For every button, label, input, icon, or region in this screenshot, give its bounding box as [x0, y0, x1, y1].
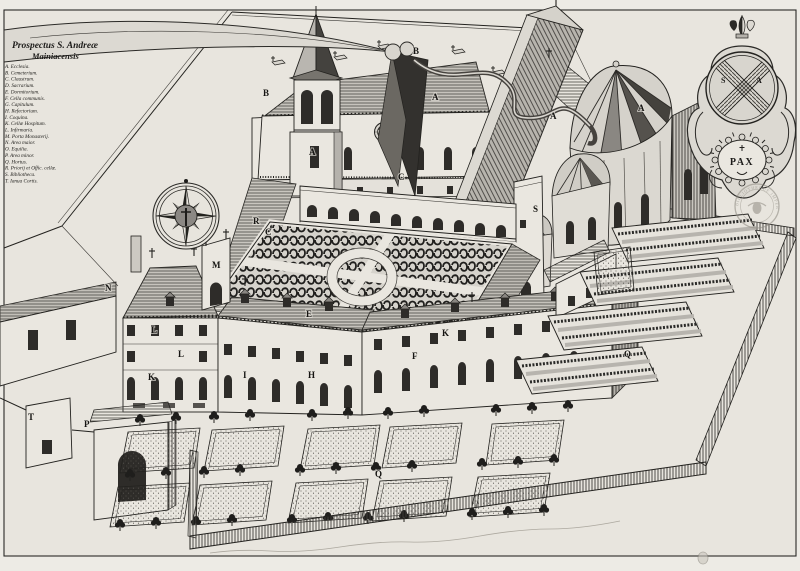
- map-letter: E: [306, 309, 312, 319]
- map-letter: A: [550, 111, 557, 121]
- legend-item: L. Infirmaria.: [4, 127, 33, 134]
- drape-knot: [385, 44, 401, 60]
- map-letter: M: [212, 260, 221, 270]
- legend-item: N. Area maior.: [4, 140, 36, 146]
- court-gate-tower: [26, 398, 72, 468]
- shield-medallion: S A: [706, 52, 778, 124]
- map-letter: R: [253, 216, 260, 226]
- map-letter: I: [243, 370, 247, 380]
- legend-item: E. Dormitorium.: [4, 89, 39, 95]
- map-title-line2: Mainiacensis: [31, 51, 79, 61]
- shield-letter-left: S: [721, 76, 726, 85]
- map-letter: L: [151, 325, 157, 335]
- map-letter: N: [105, 283, 112, 293]
- map-letter: K: [442, 328, 449, 338]
- map-letter: K: [148, 372, 155, 382]
- map-letter: A: [638, 103, 645, 113]
- stamp-eagle: [753, 202, 762, 214]
- plate-blemish: [698, 552, 708, 564]
- map-letter: P: [84, 419, 90, 429]
- map-letter: S: [533, 204, 538, 214]
- legend-item: G. Capitulum.: [5, 102, 35, 108]
- legend-item: H. Refectorium.: [4, 108, 38, 115]
- legend-item: P. Area minor.: [4, 153, 35, 159]
- map-letter: C: [398, 172, 405, 182]
- map-letter: Q: [624, 349, 631, 359]
- legend-item: O. Equilia.: [5, 147, 28, 153]
- compass-north-mark: [184, 179, 188, 183]
- map-letter: F: [412, 351, 418, 361]
- shield-letter-right: A: [756, 76, 762, 85]
- legend-item: Q. Hortus.: [5, 159, 27, 165]
- chimney: [131, 236, 141, 272]
- map-letter: H: [308, 370, 315, 380]
- legend-item: S. Bibliotheca.: [5, 172, 35, 178]
- map-letter: Q: [375, 469, 382, 479]
- legend-item: D. Sacrarium.: [4, 83, 35, 89]
- map-letter: C: [265, 227, 272, 237]
- orchard-west-wall: [188, 450, 198, 538]
- map-letter: L: [178, 349, 184, 359]
- legend-item: R. Priorij et Offic. cellæ.: [4, 165, 56, 172]
- engraving-plate: Prospectus S. Andreæ Mainiacensis A. Ecc…: [0, 0, 800, 571]
- map-letter: A: [432, 92, 439, 102]
- pax-motto: PAX: [730, 157, 754, 168]
- legend-item: T. Ianua Cortis.: [5, 178, 38, 184]
- legend-item: M. Porta Monasterij.: [4, 134, 49, 140]
- legend-item: F. Cella communis.: [4, 96, 45, 102]
- map-letter: A: [309, 147, 316, 157]
- map-letter: T: [28, 412, 34, 422]
- map-letter: B: [413, 46, 419, 56]
- map-letter: B: [263, 88, 269, 98]
- terrace-plot: [594, 247, 634, 295]
- legend-item: I. Coquina.: [4, 115, 29, 121]
- monastery-birdseye-engraving: Prospectus S. Andreæ Mainiacensis A. Ecc…: [0, 0, 800, 571]
- map-title-line1: Prospectus S. Andreæ: [12, 41, 98, 51]
- legend-item: K. Cellæ Hospitum.: [4, 121, 46, 127]
- legend-item: B. Cemeterium.: [5, 70, 37, 76]
- belfry: [294, 80, 340, 132]
- legend-item: C. Claustrum.: [5, 77, 34, 83]
- legend-item: A. Ecclesia.: [4, 64, 30, 70]
